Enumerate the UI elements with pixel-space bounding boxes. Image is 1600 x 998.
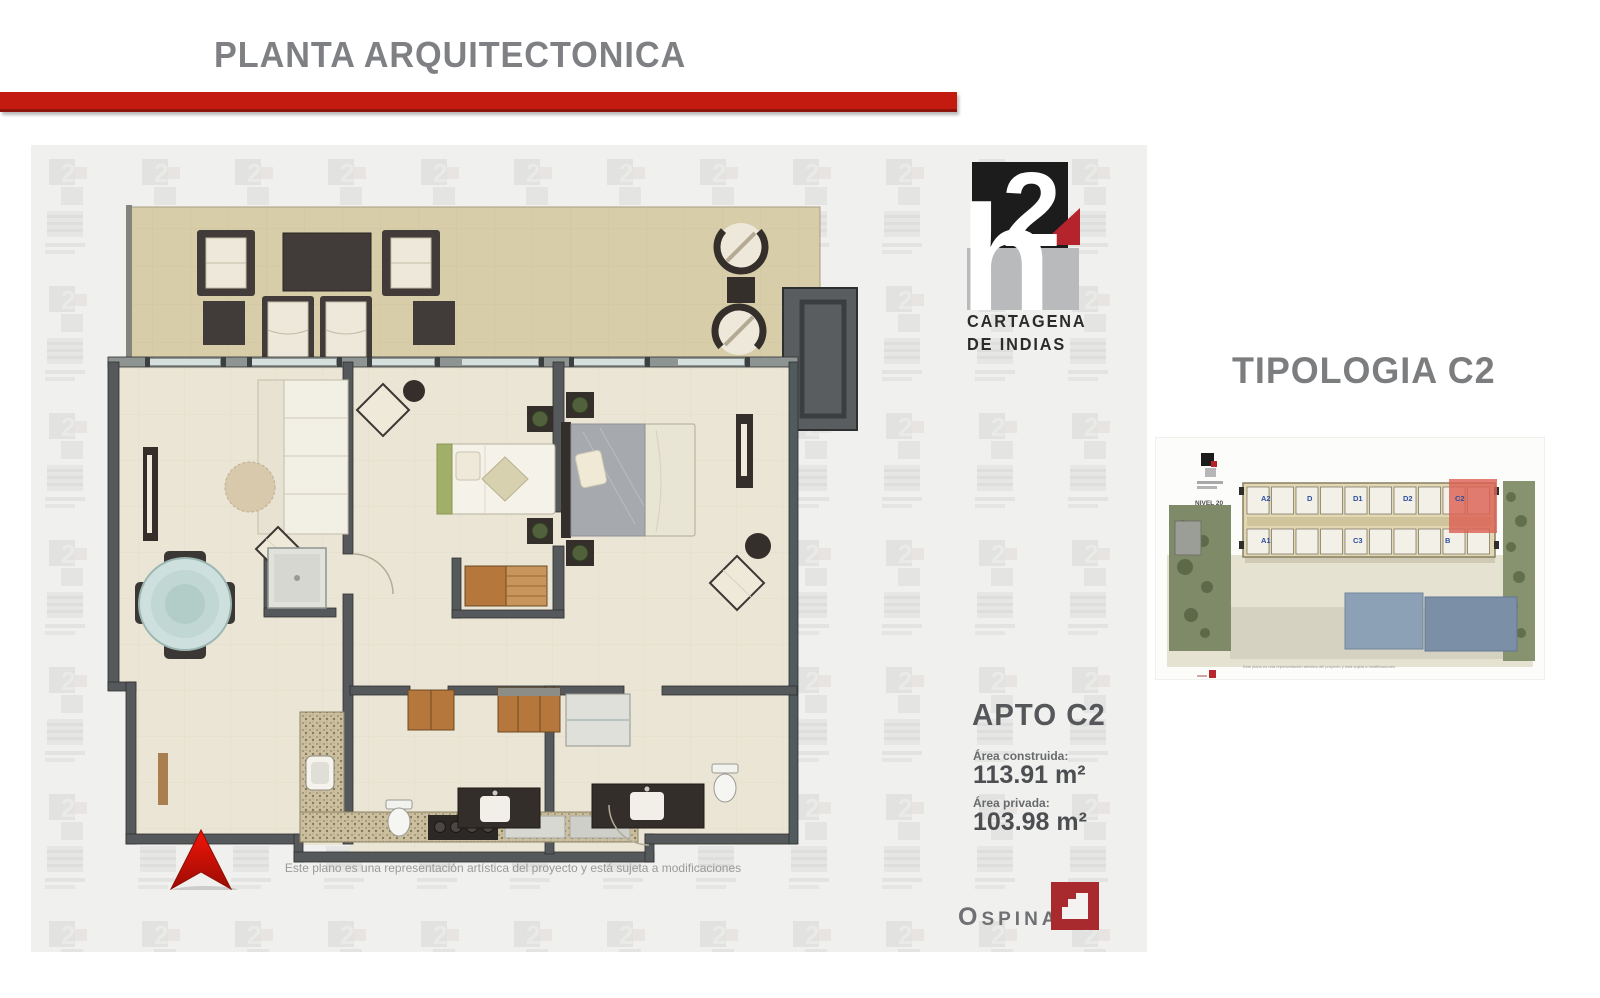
terrace-lounge-chair (262, 296, 314, 366)
logo-h-glyph: h (960, 174, 1052, 320)
wardrobe (498, 688, 560, 732)
unit-label: C2 (1455, 494, 1465, 503)
double-bed (571, 424, 695, 536)
site-plan-thumbnail: A2 D D1 D2 C2 A1 C3 B NIVEL 20 Este plan… (1155, 437, 1545, 680)
unit-label: A2 (1261, 494, 1271, 503)
brand-city-line2: DE INDIAS (967, 334, 1066, 355)
built-area-value: 113.91 m² (973, 761, 1086, 790)
slide: PLANTA ARQUITECTONICA 2 (0, 0, 1600, 998)
terrace-armchair (197, 230, 255, 296)
unit-label: B (1445, 536, 1451, 545)
apartment-name: APTO C2 (972, 697, 1106, 733)
level-label: NIVEL 20 (1195, 500, 1223, 507)
single-bed (437, 444, 555, 514)
unit-highlight (1449, 479, 1497, 533)
terrace-coffee-table (283, 233, 371, 291)
unit-label: D (1307, 494, 1313, 503)
site-caption: Este plano es una representación artísti… (1243, 664, 1395, 669)
terrace-side-table (413, 301, 455, 345)
page-title: PLANTA ARQUITECTONICA (214, 34, 686, 76)
private-area-value: 103.98 m² (973, 808, 1087, 837)
site-pool (1345, 593, 1423, 649)
terrace (126, 205, 820, 366)
toilet (386, 800, 412, 836)
ospinas-logo-icon (1051, 882, 1099, 930)
terrace-lounge-chair (320, 296, 372, 366)
unit-label: A1 (1261, 536, 1271, 545)
terrace-square-table (727, 277, 755, 303)
h2-logo: 2 h (958, 160, 1083, 320)
round-rug (225, 462, 275, 512)
unit-label: D1 (1353, 494, 1363, 503)
terrace-armchair (382, 230, 440, 296)
site-building: A2 D D1 D2 C2 A1 C3 B (1239, 479, 1499, 563)
wardrobe (408, 690, 454, 730)
site-mini-developer-icon (1209, 670, 1216, 678)
shower-stall (268, 548, 326, 608)
stool (745, 533, 771, 559)
site-pool (1425, 597, 1517, 651)
stool (403, 380, 425, 402)
headboard (561, 422, 571, 538)
brand-city-line1: CARTAGENA (967, 311, 1087, 332)
terrace-side-table (203, 301, 245, 345)
side-console (158, 753, 168, 805)
unit-label: D2 (1403, 494, 1413, 503)
toilet (712, 764, 738, 802)
accent-bar (0, 92, 957, 112)
site-landscape-left (1169, 505, 1231, 651)
wardrobe (465, 566, 547, 606)
shower-stall (566, 694, 630, 746)
floorplan-drawing (95, 190, 940, 890)
plan-disclaimer: Este plano es una representación artísti… (268, 861, 758, 875)
typology-title: TIPOLOGIA C2 (1232, 350, 1496, 392)
vanity (458, 788, 540, 828)
unit-label: C3 (1353, 536, 1363, 545)
